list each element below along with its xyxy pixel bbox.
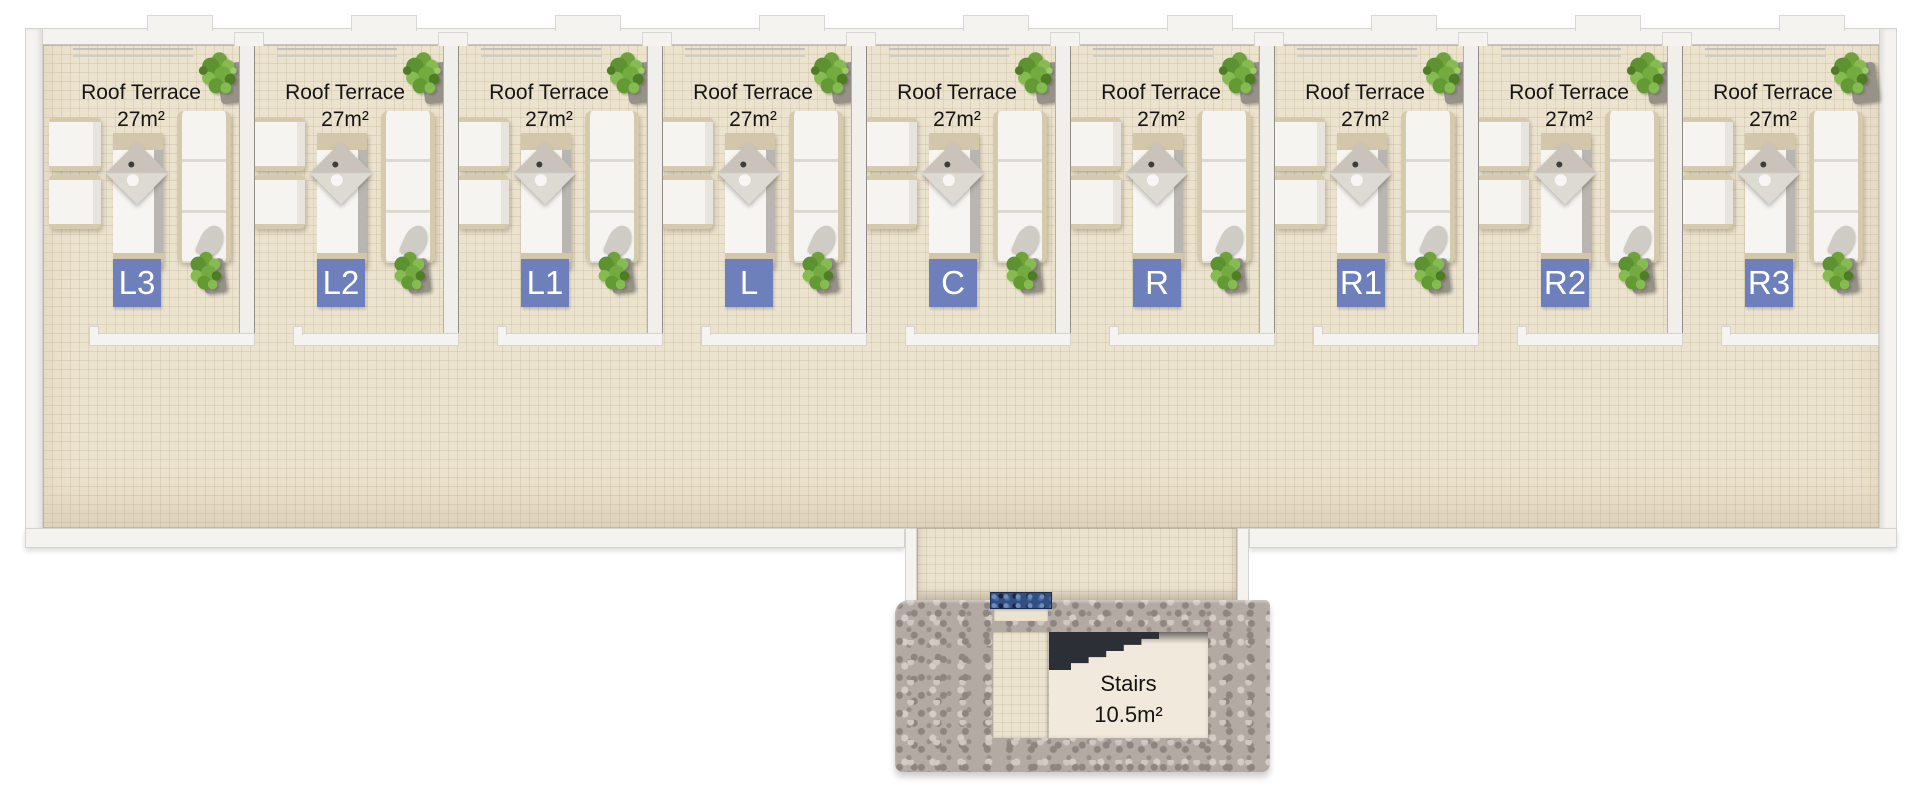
- table-dot: [535, 160, 543, 168]
- unit-name: Roof Terrace: [1675, 79, 1871, 106]
- unit-badge[interactable]: R: [1133, 259, 1181, 307]
- sliding-door-track: [889, 48, 1009, 57]
- unit-badge[interactable]: R3: [1745, 259, 1793, 307]
- plant-icon: [1403, 247, 1451, 295]
- unit-bottom-wall: [701, 333, 867, 346]
- sliding-door-track: [1501, 48, 1621, 57]
- plant-icon: [1811, 247, 1859, 295]
- unit-bottom-wall: [1517, 333, 1683, 346]
- plant-icon: [995, 247, 1043, 295]
- unit-badge[interactable]: C: [929, 259, 977, 307]
- sofa: [993, 111, 1047, 263]
- stairwell-opening: Stairs 10.5m²: [993, 632, 1208, 738]
- table-cup: [1552, 172, 1569, 189]
- unit-area: 27m²: [1675, 106, 1871, 133]
- sofa: [1605, 111, 1659, 263]
- table-dot: [1759, 160, 1767, 168]
- table-cup: [736, 172, 753, 189]
- armchair: [1273, 175, 1325, 229]
- sliding-door-track: [1705, 48, 1825, 57]
- unit-room: Roof Terrace 27m² L1: [451, 45, 655, 346]
- outer-wall-left: [25, 28, 43, 548]
- plant-icon: [1199, 247, 1247, 295]
- roof-parapet-tab: [963, 15, 1029, 31]
- unit-area: 27m²: [451, 106, 647, 133]
- table-dot: [739, 160, 747, 168]
- unit-room: Roof Terrace 27m² L: [655, 45, 859, 346]
- armchair: [49, 175, 101, 229]
- unit-name: Roof Terrace: [1471, 79, 1667, 106]
- unit-name: Roof Terrace: [655, 79, 851, 106]
- sofa: [381, 111, 435, 263]
- sofa: [789, 111, 843, 263]
- plant-icon: [587, 247, 635, 295]
- unit-badge[interactable]: L2: [317, 259, 365, 307]
- unit-name: Roof Terrace: [451, 79, 647, 106]
- unit-label: Roof Terrace 27m²: [247, 79, 443, 133]
- sliding-door-track: [1093, 48, 1213, 57]
- roof-floor-plan: Roof Terrace 27m² L3: [0, 0, 1920, 802]
- unit-label: Roof Terrace 27m²: [1267, 79, 1463, 133]
- stairs-area: 10.5m²: [1049, 699, 1208, 730]
- unit-area: 27m²: [1063, 106, 1259, 133]
- unit-label: Roof Terrace 27m²: [1471, 79, 1667, 133]
- outer-wall-right: [1879, 28, 1897, 548]
- roof-parapet-tab: [759, 15, 825, 31]
- plant-icon: [179, 247, 227, 295]
- armchair: [661, 175, 713, 229]
- unit-name: Roof Terrace: [859, 79, 1055, 106]
- table-cup: [328, 172, 345, 189]
- unit-area: 27m²: [859, 106, 1055, 133]
- roof-parapet-tab: [351, 15, 417, 31]
- armchair: [457, 175, 509, 229]
- sliding-door-track: [481, 48, 601, 57]
- table-cup: [124, 172, 141, 189]
- sliding-door-track: [73, 48, 193, 57]
- stairs-block: Stairs 10.5m²: [895, 600, 1270, 772]
- unit-badge[interactable]: R1: [1337, 259, 1385, 307]
- stairs-label: Stairs 10.5m²: [1049, 668, 1208, 730]
- unit-label: Roof Terrace 27m²: [43, 79, 239, 133]
- unit-area: 27m²: [43, 106, 239, 133]
- sofa: [585, 111, 639, 263]
- unit-name: Roof Terrace: [43, 79, 239, 106]
- roof-parapet-tab: [1575, 15, 1641, 31]
- armchair: [1681, 175, 1733, 229]
- roof-parapet-tab: [1167, 15, 1233, 31]
- unit-area: 27m²: [1471, 106, 1667, 133]
- unit-bottom-wall: [1721, 333, 1879, 346]
- roof-parapet-tab: [1779, 15, 1845, 31]
- unit-badge[interactable]: L3: [113, 259, 161, 307]
- notch-wall-right: [1237, 528, 1249, 602]
- unit-bottom-wall: [1109, 333, 1275, 346]
- unit-area: 27m²: [1267, 106, 1463, 133]
- stairs-landing-floor: [917, 528, 1237, 602]
- outer-wall-bottom-right: [1249, 528, 1897, 548]
- plant-icon: [1607, 247, 1655, 295]
- stairs-name: Stairs: [1049, 668, 1208, 699]
- armchair: [1069, 175, 1121, 229]
- armchair: [1477, 175, 1529, 229]
- unit-name: Roof Terrace: [1267, 79, 1463, 106]
- roof-parapet-tab: [147, 15, 213, 31]
- unit-bottom-wall: [1313, 333, 1479, 346]
- sofa: [1401, 111, 1455, 263]
- unit-badge[interactable]: L: [725, 259, 773, 307]
- sliding-door-track: [685, 48, 805, 57]
- table-dot: [127, 160, 135, 168]
- unit-badge[interactable]: R2: [1541, 259, 1589, 307]
- table-cup: [532, 172, 549, 189]
- unit-badge[interactable]: L1: [521, 259, 569, 307]
- unit-room: Roof Terrace 27m² R3: [1675, 45, 1879, 346]
- outer-wall-bottom-left: [25, 528, 905, 548]
- unit-label: Roof Terrace 27m²: [1675, 79, 1871, 133]
- unit-room: Roof Terrace 27m² C: [859, 45, 1063, 346]
- armchair: [865, 175, 917, 229]
- sofa: [1809, 111, 1863, 263]
- unit-bottom-wall: [905, 333, 1071, 346]
- unit-room: Roof Terrace 27m² R1: [1267, 45, 1471, 346]
- sofa: [1197, 111, 1251, 263]
- unit-bottom-wall: [89, 333, 255, 346]
- unit-bottom-wall: [497, 333, 663, 346]
- table-dot: [943, 160, 951, 168]
- table-dot: [1147, 160, 1155, 168]
- unit-bottom-wall: [293, 333, 459, 346]
- mosaic-step-notch: [994, 609, 1048, 621]
- unit-room: Roof Terrace 27m² L3: [43, 45, 247, 346]
- terrace-units-row: Roof Terrace 27m² L3: [43, 45, 1879, 346]
- unit-room: Roof Terrace 27m² L2: [247, 45, 451, 346]
- unit-area: 27m²: [655, 106, 851, 133]
- unit-label: Roof Terrace 27m²: [451, 79, 647, 133]
- table-dot: [1351, 160, 1359, 168]
- roof-parapet-tab: [555, 15, 621, 31]
- unit-label: Roof Terrace 27m²: [1063, 79, 1259, 133]
- stair-treads-icon: [1049, 632, 1159, 670]
- stairwell-landing-tiles: [993, 632, 1049, 738]
- table-cup: [1348, 172, 1365, 189]
- armchair: [253, 175, 305, 229]
- sliding-door-track: [1297, 48, 1417, 57]
- blue-mosaic-step: [990, 592, 1052, 609]
- unit-name: Roof Terrace: [247, 79, 443, 106]
- unit-room: Roof Terrace 27m² R: [1063, 45, 1267, 346]
- plant-icon: [383, 247, 431, 295]
- table-dot: [1555, 160, 1563, 168]
- unit-room: Roof Terrace 27m² R2: [1471, 45, 1675, 346]
- table-dot: [331, 160, 339, 168]
- plant-icon: [791, 247, 839, 295]
- unit-label: Roof Terrace 27m²: [655, 79, 851, 133]
- table-cup: [1756, 172, 1773, 189]
- unit-label: Roof Terrace 27m²: [859, 79, 1055, 133]
- table-cup: [940, 172, 957, 189]
- roof-parapet-tab: [1371, 15, 1437, 31]
- notch-wall-left: [905, 528, 917, 602]
- unit-name: Roof Terrace: [1063, 79, 1259, 106]
- sliding-door-track: [277, 48, 397, 57]
- unit-area: 27m²: [247, 106, 443, 133]
- sofa: [177, 111, 231, 263]
- table-cup: [1144, 172, 1161, 189]
